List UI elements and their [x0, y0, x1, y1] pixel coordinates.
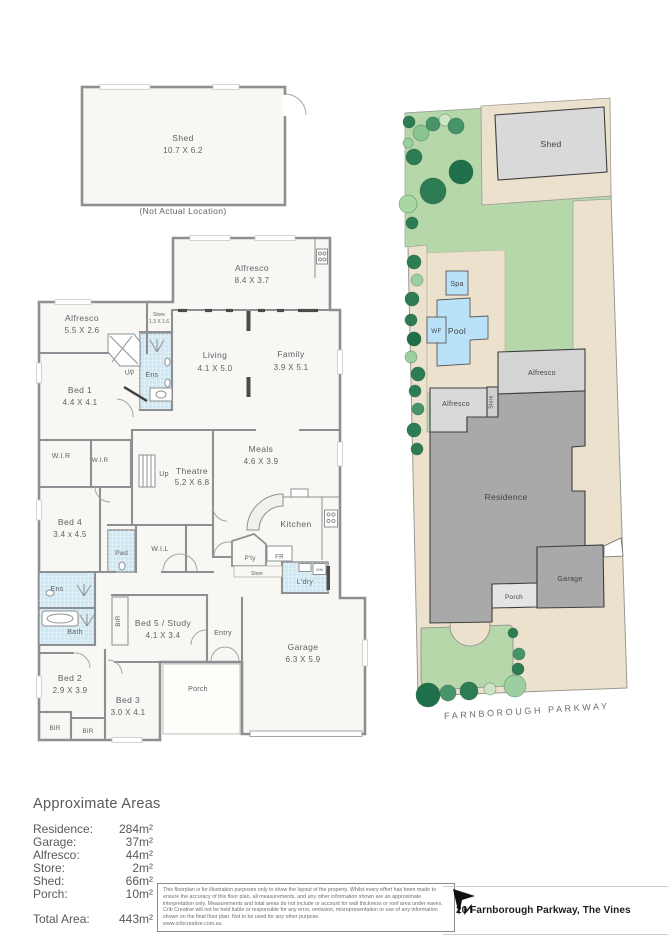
area-value: 10m²: [126, 888, 153, 901]
label-family: Family: [277, 349, 305, 359]
shed-door-arc: [285, 94, 306, 115]
dims-alfresco-left: 5.5 X 2.6: [65, 326, 100, 335]
dims-store-top: 1.3 X 1.6: [149, 319, 169, 325]
siteplan-residence-label: Residence: [485, 492, 528, 502]
label-bed4: Bed 4: [58, 517, 82, 527]
area-label: Alfresco:: [33, 849, 80, 862]
label-wir2: W.I.R: [92, 457, 109, 464]
shed-dims: 10.7 X 6.2: [163, 146, 203, 155]
disclaimer-text: This floorplan is for illustration purpo…: [163, 887, 449, 921]
shed-label: Shed: [172, 133, 193, 143]
label-store2: Store: [251, 571, 263, 577]
floorplan-page: Shed 10.7 X 6.2 (Not Actual Location): [0, 0, 668, 946]
label-theatre: Theatre: [176, 466, 208, 476]
dims-bed4: 3.4 x 4.5: [53, 530, 87, 539]
siteplan-alfresco-main-label: Alfresco: [528, 370, 556, 377]
siteplan: Shed Spa Pool WF Alfresco Alfresco Store…: [399, 98, 627, 721]
address-footer: 20 Farnborough Parkway, The Vines: [443, 886, 668, 935]
siteplan-alfresco-small-label: Alfresco: [442, 401, 470, 408]
dims-bed2: 2.9 X 3.9: [53, 686, 88, 695]
toilet-icon: [119, 562, 125, 570]
label-entry: Entry: [214, 630, 232, 637]
total-label: Total Area:: [33, 913, 90, 926]
label-porch: Porch: [188, 686, 208, 693]
label-bath: Bath: [67, 629, 83, 636]
label-bed5: Bed 5 / Study: [135, 618, 192, 628]
label-fridge: FR: [275, 554, 284, 561]
area-value: 44m²: [126, 849, 153, 862]
garage-door-opening: [250, 731, 362, 737]
area-value: 66m²: [126, 875, 153, 888]
dims-garage: 6.3 X 5.9: [286, 655, 321, 664]
label-bir1: BIR: [49, 725, 60, 732]
area-row-total: Total Area: 443m²: [33, 913, 153, 926]
label-bed3: Bed 3: [116, 695, 140, 705]
label-meals: Meals: [249, 444, 274, 454]
label-pwd: Pwd: [115, 550, 128, 557]
shed-side-door-gap: [283, 95, 288, 116]
porch-slab: [163, 664, 240, 734]
shed-door-opening: [100, 84, 150, 89]
siteplan-spa-label: Spa: [450, 281, 463, 288]
dims-bed1: 4.4 X 4.1: [63, 398, 98, 407]
area-label: Store:: [33, 862, 65, 875]
vanity-icon: [150, 388, 172, 401]
areas-title: Approximate Areas: [33, 796, 161, 812]
label-garage: Garage: [288, 642, 319, 652]
plan-canvas: Shed 10.7 X 6.2 (Not Actual Location): [0, 0, 668, 780]
label-store-top: Store: [153, 312, 165, 318]
footer-address: 20 Farnborough Parkway, The Vines: [456, 905, 631, 916]
laundry-trough-icon: [299, 564, 311, 572]
areas-table: Approximate Areas Residence: 284m² Garag…: [33, 796, 161, 926]
label-bed2: Bed 2: [58, 673, 82, 683]
shed-note: (Not Actual Location): [139, 206, 226, 216]
dims-theatre: 5.2 X 6.8: [175, 478, 210, 487]
label-bir2: BIR: [82, 728, 93, 735]
area-row-residence: Residence: 284m²: [33, 823, 153, 836]
label-wil: W.I.L: [151, 546, 168, 553]
area-value: 37m²: [126, 836, 153, 849]
area-row-porch: Porch: 10m²: [33, 888, 153, 901]
area-label: Residence:: [33, 823, 93, 836]
label-ens2: Ens: [51, 586, 64, 593]
label-alfresco-left: Alfresco: [65, 313, 99, 323]
dims-family: 3.9 X 5.1: [274, 363, 309, 372]
label-alfresco-top: Alfresco: [235, 263, 269, 273]
siteplan-wf-label: WF: [431, 328, 441, 335]
siteplan-garage-label: Garage: [557, 576, 582, 583]
label-kitchen: Kitchen: [280, 519, 311, 529]
area-value: 2m²: [132, 862, 153, 875]
label-living: Living: [203, 350, 228, 360]
area-row-alfresco: Alfresco: 44m²: [33, 849, 153, 862]
dims-alfresco-top: 8.4 X 3.7: [235, 276, 270, 285]
toilet-icon: [165, 379, 170, 387]
sink-icon: [291, 489, 308, 497]
dims-bed3: 3.0 X 4.1: [111, 708, 146, 717]
bbq-icon: [317, 249, 328, 264]
siteplan-store-label: Store: [489, 395, 495, 408]
north-arrow-icon: [451, 887, 479, 917]
dims-bed5: 4.1 X 3.4: [146, 631, 181, 640]
siteplan-shed-label: Shed: [540, 139, 561, 149]
dims-meals: 4.6 X 3.9: [244, 457, 279, 466]
label-bed1: Bed 1: [68, 385, 92, 395]
disclaimer-url: www.cribcreative.com.au: [163, 921, 449, 928]
label-laundry: L'dry: [297, 579, 314, 586]
disclaimer-box: This floorplan is for illustration purpo…: [157, 883, 455, 932]
toilet-icon: [165, 358, 170, 366]
dims-living: 4.1 X 5.0: [198, 364, 233, 373]
label-ens1: Ens: [146, 372, 159, 379]
label-wm: WM: [316, 568, 323, 572]
label-wir1: W.I.R: [52, 453, 71, 460]
area-row-store: Store: 2m²: [33, 862, 153, 875]
stairs: [139, 455, 155, 487]
shed-inset: Shed 10.7 X 6.2 (Not Actual Location): [82, 84, 306, 216]
label-bir3: BIR: [115, 615, 122, 626]
total-value: 443m²: [119, 913, 153, 926]
area-row-shed: Shed: 66m²: [33, 875, 153, 888]
area-value: 284m²: [119, 823, 153, 836]
floorplan: Alfresco 8.4 X 3.7 Alfresco 5.5 X 2.6 St…: [37, 236, 368, 743]
siteplan-porch-label: Porch: [505, 594, 523, 601]
shed-window: [213, 84, 239, 89]
area-label: Shed:: [33, 875, 64, 888]
siteplan-pool-label: Pool: [448, 326, 466, 336]
label-up2: Up: [159, 471, 169, 478]
area-row-garage: Garage: 37m²: [33, 836, 153, 849]
label-pantry: P'ty: [244, 555, 256, 562]
area-label: Porch:: [33, 888, 68, 901]
area-label: Garage:: [33, 836, 76, 849]
street-label: FARNBOROUGH PARKWAY: [444, 701, 610, 721]
cooktop-icon: [325, 510, 338, 527]
